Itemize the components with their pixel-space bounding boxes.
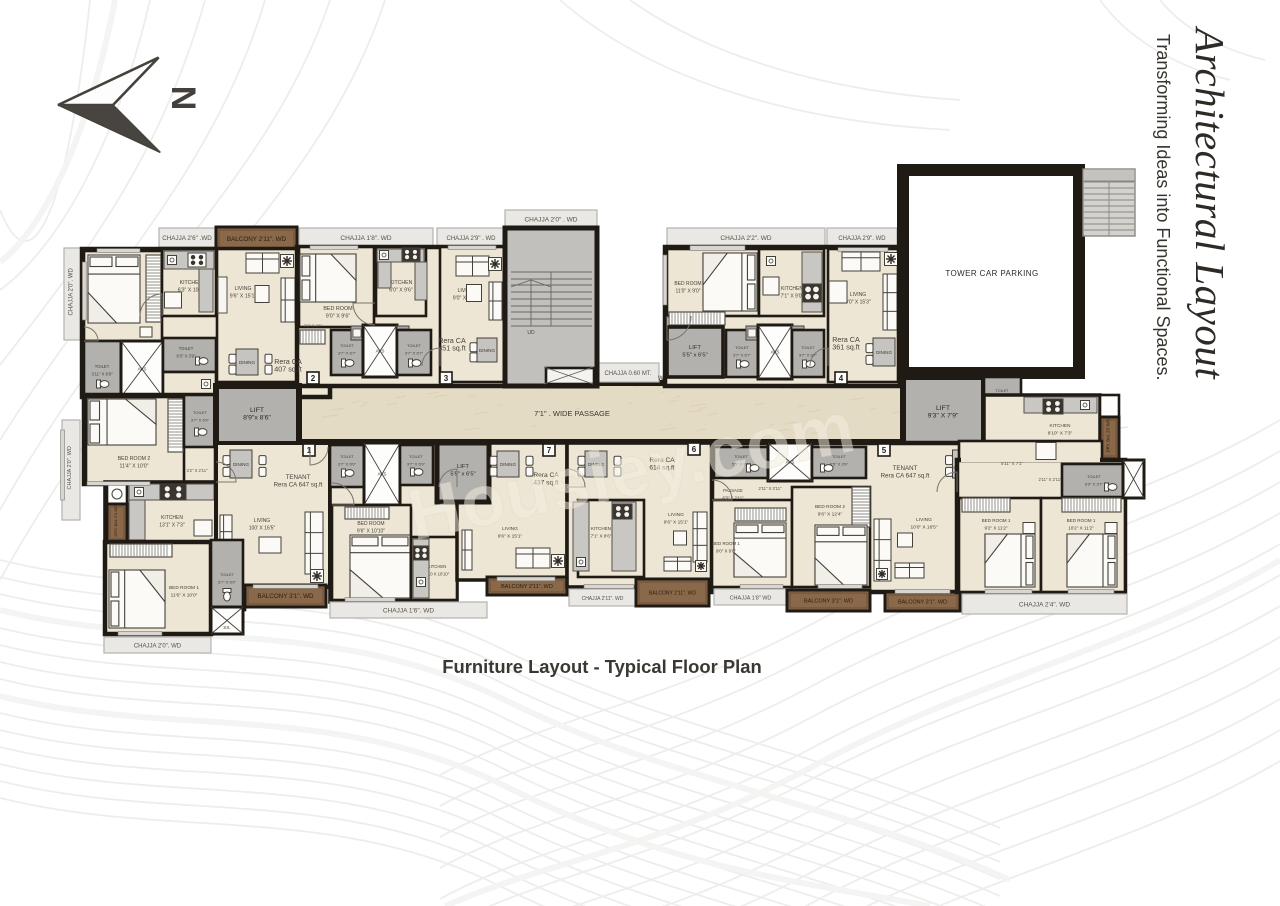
svg-text:3'3" X 2'6": 3'3" X 2'6" bbox=[304, 323, 323, 328]
svg-text:BED ROOM 2: BED ROOM 2 bbox=[815, 504, 845, 510]
svg-text:AVS: AVS bbox=[378, 472, 387, 477]
svg-text:CHAJJA 1'8". WD: CHAJJA 1'8". WD bbox=[340, 235, 392, 242]
svg-text:6'9" X 3'7": 6'9" X 3'7" bbox=[1085, 482, 1104, 487]
svg-text:3'2" X 2'11": 3'2" X 2'11" bbox=[186, 468, 208, 473]
svg-text:2'11" X 2'11": 2'11" X 2'11" bbox=[758, 486, 782, 491]
svg-text:TOILET: TOILET bbox=[409, 454, 423, 459]
svg-text:Architectural Layout: Architectural Layout bbox=[1187, 25, 1233, 380]
svg-text:DINING: DINING bbox=[239, 360, 256, 365]
svg-text:KITCHEN: KITCHEN bbox=[591, 526, 611, 531]
svg-text:CHAJJA 2'0". WD: CHAJJA 2'0". WD bbox=[134, 643, 182, 649]
svg-text:BALCONY 3'1". WD: BALCONY 3'1". WD bbox=[257, 593, 314, 600]
svg-text:9'6" X 15'1": 9'6" X 15'1" bbox=[230, 294, 257, 300]
svg-text:DINING: DINING bbox=[876, 350, 893, 355]
svg-text:KITCHEN: KITCHEN bbox=[781, 286, 803, 292]
svg-text:KITCHEN: KITCHEN bbox=[390, 280, 413, 286]
svg-text:TOILET: TOILET bbox=[193, 410, 207, 415]
svg-text:CHAJJA 2'9" . WD: CHAJJA 2'9" . WD bbox=[447, 236, 497, 242]
svg-text:BALCONY 3'1". WD: BALCONY 3'1". WD bbox=[804, 599, 853, 605]
svg-text:Rera CA 647 sq.ft: Rera CA 647 sq.ft bbox=[881, 473, 930, 480]
svg-text:DRY. BAL 2'4 WD: DRY. BAL 2'4 WD bbox=[113, 505, 118, 537]
svg-text:TENANT: TENANT bbox=[893, 465, 918, 472]
svg-text:BALCONY 2'11". WD: BALCONY 2'11". WD bbox=[501, 584, 553, 590]
svg-text:AVS: AVS bbox=[376, 349, 385, 354]
svg-text:TOILET: TOILET bbox=[95, 364, 110, 369]
svg-text:1: 1 bbox=[307, 446, 312, 455]
svg-text:BED ROOM 1: BED ROOM 1 bbox=[169, 585, 199, 591]
svg-text:5'5" x 6'5": 5'5" x 6'5" bbox=[682, 353, 707, 359]
svg-text:LIVING: LIVING bbox=[234, 286, 251, 292]
svg-text:BALCONY 2'11". WD: BALCONY 2'11". WD bbox=[649, 591, 696, 597]
svg-text:LIFT: LIFT bbox=[250, 407, 264, 414]
svg-text:3'7" X 6'7": 3'7" X 6'7" bbox=[338, 351, 357, 356]
svg-text:TENANT: TENANT bbox=[286, 474, 311, 481]
svg-text:BED ROOM: BED ROOM bbox=[323, 306, 353, 312]
svg-text:3'7" X 6'9": 3'7" X 6'9" bbox=[218, 580, 237, 585]
svg-text:SS.: SS. bbox=[223, 625, 230, 630]
svg-text:6'3" X 3'9": 6'3" X 3'9" bbox=[176, 354, 196, 359]
svg-text:3'7" X 6'7": 3'7" X 6'7" bbox=[733, 353, 752, 358]
svg-text:CHAJJA 2'2". WD: CHAJJA 2'2". WD bbox=[720, 235, 772, 242]
svg-text:AVS: AVS bbox=[771, 350, 780, 355]
svg-text:LIFT: LIFT bbox=[689, 345, 701, 351]
svg-text:TOILET: TOILET bbox=[735, 345, 749, 350]
svg-text:BED ROOM 2: BED ROOM 2 bbox=[118, 456, 151, 462]
svg-text:DINING: DINING bbox=[479, 348, 496, 353]
svg-text:BED ROOM 1: BED ROOM 1 bbox=[982, 518, 1011, 523]
svg-text:DRY. BAL 2'6 WD: DRY. BAL 2'6 WD bbox=[1106, 419, 1111, 452]
svg-text:KITCHEN: KITCHEN bbox=[428, 564, 446, 569]
svg-text:10'2" X 11'2": 10'2" X 11'2" bbox=[1068, 526, 1094, 531]
svg-text:TOWER CAR PARKING: TOWER CAR PARKING bbox=[945, 269, 1038, 278]
svg-text:BALCONY 3'1". WD: BALCONY 3'1". WD bbox=[898, 600, 947, 606]
svg-text:CHAJJA 1'8" WD: CHAJJA 1'8" WD bbox=[730, 595, 772, 601]
svg-text:9'0" X 9'0": 9'0" X 9'0" bbox=[716, 549, 736, 554]
svg-text:BALCONY 2'11". WD: BALCONY 2'11". WD bbox=[227, 236, 287, 243]
svg-text:8'10" X 7'3": 8'10" X 7'3" bbox=[1048, 431, 1073, 437]
svg-text:TOILET: TOILET bbox=[220, 572, 234, 577]
svg-text:TOILET: TOILET bbox=[340, 454, 354, 459]
svg-text:BED ROOM 1: BED ROOM 1 bbox=[1067, 518, 1096, 523]
svg-text:3'11" X 6'9": 3'11" X 6'9" bbox=[91, 372, 113, 377]
svg-text:7'1" . WIDE PASSAGE: 7'1" . WIDE PASSAGE bbox=[534, 409, 610, 418]
svg-text:100' X 16'5": 100' X 16'5" bbox=[249, 526, 276, 532]
svg-text:13'1" X 7'3": 13'1" X 7'3" bbox=[159, 523, 185, 529]
svg-text:N: N bbox=[164, 86, 202, 111]
svg-text:CHAJJA 2'0". WD: CHAJJA 2'0". WD bbox=[69, 267, 75, 315]
svg-text:CHAJJA 1'6". WD: CHAJJA 1'6". WD bbox=[383, 607, 435, 614]
svg-text:9'3" X 7'9": 9'3" X 7'9" bbox=[928, 413, 959, 420]
svg-text:TOILET: TOILET bbox=[801, 345, 815, 350]
svg-text:Rera CA 647 sq.ft: Rera CA 647 sq.ft bbox=[274, 482, 323, 489]
svg-text:LIVING: LIVING bbox=[850, 292, 867, 298]
svg-text:5: 5 bbox=[882, 446, 887, 455]
svg-text:11'6" X 10'0": 11'6" X 10'0" bbox=[171, 593, 198, 599]
svg-text:361 sq.ft: 361 sq.ft bbox=[832, 343, 860, 352]
svg-text:CHAJJA 2'9". WD: CHAJJA 2'9". WD bbox=[838, 236, 886, 242]
svg-text:TOILET: TOILET bbox=[340, 343, 354, 348]
svg-text:Furniture Layout - Typical Flo: Furniture Layout - Typical Floor Plan bbox=[442, 656, 761, 677]
svg-text:BED ROOM 1: BED ROOM 1 bbox=[712, 541, 740, 546]
svg-text:CHAJJA 2'11". WD: CHAJJA 2'11". WD bbox=[582, 596, 624, 602]
svg-text:2: 2 bbox=[311, 374, 316, 383]
svg-text:9'0" X 9'6": 9'0" X 9'6" bbox=[326, 314, 351, 320]
svg-text:5'11" X 7'1": 5'11" X 7'1" bbox=[1001, 461, 1023, 466]
svg-text:3: 3 bbox=[444, 374, 449, 383]
svg-text:LIVING: LIVING bbox=[254, 518, 271, 524]
svg-text:AVS: AVS bbox=[138, 367, 147, 372]
svg-text:TOILET: TOILET bbox=[1087, 474, 1101, 479]
svg-text:11'0" X 9'0": 11'0" X 9'0" bbox=[675, 289, 700, 295]
svg-text:9'2" X 11'2": 9'2" X 11'2" bbox=[984, 526, 1007, 531]
svg-text:Transforming Ideas into Functi: Transforming Ideas into Functional Space… bbox=[1153, 34, 1173, 381]
svg-text:9'6" X 12'4": 9'6" X 12'4" bbox=[818, 512, 843, 518]
svg-text:LIFT: LIFT bbox=[936, 405, 950, 412]
svg-text:9'0" X 15'3": 9'0" X 15'3" bbox=[845, 300, 871, 306]
svg-text:BED ROOM: BED ROOM bbox=[357, 521, 384, 527]
svg-text:CHAJJA 2'4". WD: CHAJJA 2'4". WD bbox=[1019, 601, 1071, 608]
svg-text:9'6" X 10'10": 9'6" X 10'10" bbox=[357, 529, 385, 535]
svg-text:TOILET: TOILET bbox=[995, 389, 1009, 393]
svg-text:DINING: DINING bbox=[233, 462, 250, 467]
svg-text:10'0" X 16'5": 10'0" X 16'5" bbox=[910, 525, 937, 531]
svg-text:CHAJJA 0.60 MT.: CHAJJA 0.60 MT. bbox=[604, 371, 651, 377]
svg-text:LIVING: LIVING bbox=[668, 512, 684, 518]
svg-text:CHAJJA 2'0". WD: CHAJJA 2'0". WD bbox=[67, 446, 73, 489]
svg-text:3'7" X 6'9": 3'7" X 6'9" bbox=[191, 418, 210, 423]
svg-text:8'9"x 8'6": 8'9"x 8'6" bbox=[243, 415, 271, 422]
svg-text:UD: UD bbox=[527, 330, 535, 336]
svg-text:351 sq.ft: 351 sq.ft bbox=[438, 344, 466, 353]
svg-text:11'4" X 10'0": 11'4" X 10'0" bbox=[120, 464, 149, 470]
svg-text:7'1" X 9'0": 7'1" X 9'0" bbox=[781, 294, 804, 300]
svg-text:TOILET: TOILET bbox=[179, 346, 194, 351]
svg-text:TOILET: TOILET bbox=[407, 343, 421, 348]
svg-text:7'1" X 8'6": 7'1" X 8'6" bbox=[591, 534, 612, 539]
svg-text:9'6" X 15'1": 9'6" X 15'1" bbox=[664, 520, 689, 526]
svg-text:407 sq.ft: 407 sq.ft bbox=[274, 365, 302, 374]
svg-text:KITCHEN: KITCHEN bbox=[1049, 423, 1071, 429]
svg-text:4: 4 bbox=[839, 374, 844, 383]
svg-text:LIVING: LIVING bbox=[916, 517, 932, 523]
svg-text:CHAJJA 2'0" . WD: CHAJJA 2'0" . WD bbox=[524, 216, 577, 223]
svg-text:2'11" X 2'11": 2'11" X 2'11" bbox=[1038, 477, 1062, 482]
svg-text:CHAJJA 2'6" .WD: CHAJJA 2'6" .WD bbox=[162, 235, 212, 242]
svg-text:BED ROOM: BED ROOM bbox=[674, 281, 701, 287]
svg-text:6'0" X 9'6": 6'0" X 9'6" bbox=[389, 288, 413, 294]
svg-text:3'7" X 6'7": 3'7" X 6'7" bbox=[405, 351, 424, 356]
svg-text:KITCHEN: KITCHEN bbox=[161, 515, 183, 521]
svg-text:3'7" X 6'9": 3'7" X 6'9" bbox=[338, 462, 357, 467]
svg-text:3'7" X 6'9": 3'7" X 6'9" bbox=[407, 462, 426, 467]
